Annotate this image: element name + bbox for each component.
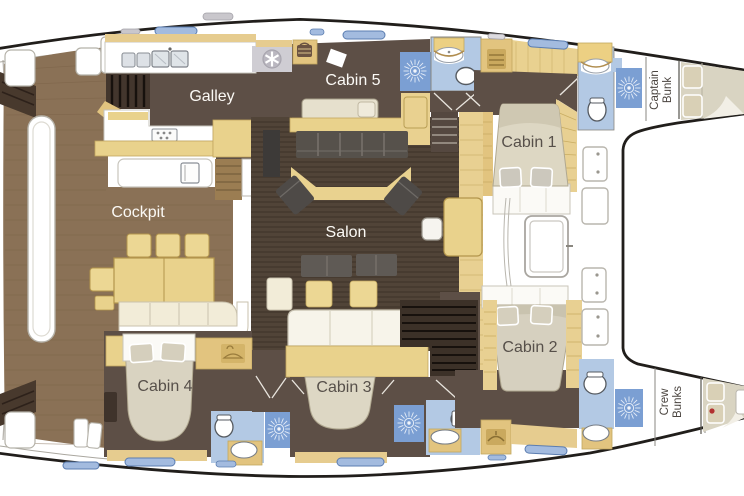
svg-text:Cabin 3: Cabin 3 [316,379,371,396]
svg-text:Captain: Captain [649,70,661,110]
svg-text:Bunks: Bunks [672,386,684,418]
svg-text:Salon: Salon [326,224,367,241]
svg-text:Cabin 1: Cabin 1 [501,134,556,151]
svg-text:Cockpit: Cockpit [111,204,165,221]
svg-text:Bunk: Bunk [662,77,674,103]
svg-text:Galley: Galley [189,88,234,105]
svg-text:Cabin 2: Cabin 2 [502,339,557,356]
svg-text:Cabin 4: Cabin 4 [137,378,192,395]
svg-text:Crew: Crew [659,388,671,416]
svg-text:Cabin 5: Cabin 5 [325,72,380,89]
